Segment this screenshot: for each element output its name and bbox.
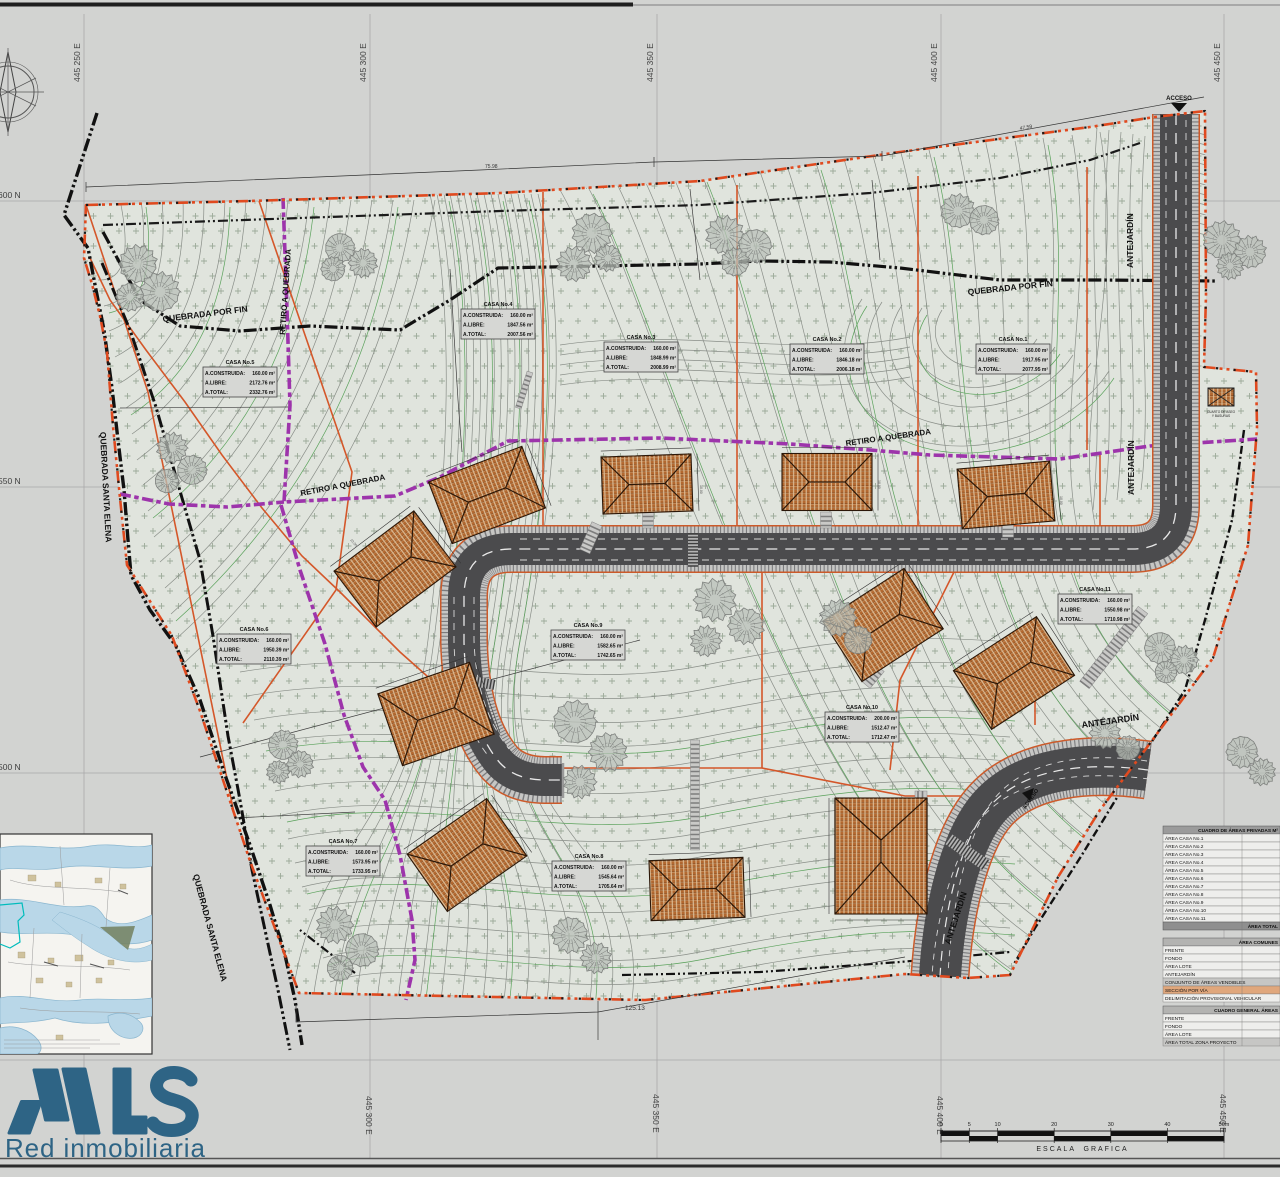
svg-text:160.00 m²: 160.00 m² bbox=[601, 865, 624, 871]
svg-text:ÁREA LOTE: ÁREA LOTE bbox=[1165, 1031, 1192, 1038]
svg-text:A.TOTAL:: A.TOTAL: bbox=[308, 869, 331, 875]
svg-text:5: 5 bbox=[968, 1122, 971, 1128]
svg-text:CASA No.7: CASA No.7 bbox=[329, 839, 358, 845]
svg-text:FONDO: FONDO bbox=[1165, 1024, 1183, 1030]
svg-text:1848.99 m²: 1848.99 m² bbox=[650, 356, 676, 362]
svg-text:1846.18 m²: 1846.18 m² bbox=[836, 358, 862, 364]
svg-text:ÁREA CASA No.3: ÁREA CASA No.3 bbox=[1165, 851, 1204, 858]
svg-text:1512.47 m²: 1512.47 m² bbox=[871, 726, 897, 732]
svg-text:A.LIBRE:: A.LIBRE: bbox=[554, 875, 576, 881]
svg-text:A.LIBRE:: A.LIBRE: bbox=[1060, 608, 1082, 614]
svg-text:ÁREA CASA No.5: ÁREA CASA No.5 bbox=[1165, 867, 1204, 874]
svg-text:A.LIBRE:: A.LIBRE: bbox=[308, 860, 330, 866]
svg-text:A.TOTAL:: A.TOTAL: bbox=[463, 332, 486, 338]
svg-text:1950.39 m²: 1950.39 m² bbox=[263, 648, 289, 654]
svg-text:160.00 m²: 160.00 m² bbox=[355, 850, 378, 856]
svg-text:CASA No.6: CASA No.6 bbox=[240, 627, 269, 633]
svg-text:A.LIBRE:: A.LIBRE: bbox=[606, 356, 628, 362]
svg-text:A.LIBRE:: A.LIBRE: bbox=[205, 381, 227, 387]
svg-text:A.LIBRE:: A.LIBRE: bbox=[978, 358, 1000, 364]
svg-text:A.TOTAL:: A.TOTAL: bbox=[205, 390, 228, 396]
svg-text:CONJUNTO DE ÁREAS VENDIBLES: CONJUNTO DE ÁREAS VENDIBLES bbox=[1165, 979, 1245, 986]
svg-text:CASA No.3: CASA No.3 bbox=[627, 335, 656, 341]
svg-text:A.CONSTRUIDA:: A.CONSTRUIDA: bbox=[827, 716, 867, 722]
svg-text:ÁREA TOTAL ZONA PROYECTO: ÁREA TOTAL ZONA PROYECTO bbox=[1165, 1039, 1237, 1046]
svg-text:1710.98 m²: 1710.98 m² bbox=[1104, 617, 1130, 623]
svg-text:160.00 m²: 160.00 m² bbox=[1025, 348, 1048, 354]
svg-text:CASA No.5: CASA No.5 bbox=[226, 360, 255, 366]
svg-text:A.CONSTRUIDA:: A.CONSTRUIDA: bbox=[219, 638, 259, 644]
svg-text:445 250 E: 445 250 E bbox=[72, 43, 82, 82]
svg-text:160.00 m²: 160.00 m² bbox=[839, 348, 862, 354]
svg-text:160.00 m²: 160.00 m² bbox=[1107, 598, 1130, 604]
svg-text:1917.95 m²: 1917.95 m² bbox=[1022, 358, 1048, 364]
svg-text:2006.18 m²: 2006.18 m² bbox=[836, 367, 862, 373]
svg-text:A.LIBRE:: A.LIBRE: bbox=[553, 644, 575, 650]
svg-text:ÁREA CASA No.4: ÁREA CASA No.4 bbox=[1165, 859, 1204, 866]
svg-text:ESCALA GRAFICA: ESCALA GRAFICA bbox=[1036, 1146, 1128, 1153]
svg-text:500 N: 500 N bbox=[0, 762, 21, 772]
svg-text:1733.95 m²: 1733.95 m² bbox=[352, 869, 378, 875]
svg-text:A.TOTAL:: A.TOTAL: bbox=[827, 735, 850, 741]
svg-text:ÁREA LOTE: ÁREA LOTE bbox=[1165, 963, 1192, 970]
svg-text:A.LIBRE:: A.LIBRE: bbox=[827, 726, 849, 732]
svg-text:A.LIBRE:: A.LIBRE: bbox=[219, 648, 241, 654]
svg-text:2008.99 m²: 2008.99 m² bbox=[650, 365, 676, 371]
svg-text:A.CONSTRUIDA:: A.CONSTRUIDA: bbox=[205, 371, 245, 377]
svg-text:445 350 E: 445 350 E bbox=[651, 1094, 661, 1133]
svg-text:2077.95 m²: 2077.95 m² bbox=[1022, 367, 1048, 373]
svg-text:A.TOTAL:: A.TOTAL: bbox=[606, 365, 629, 371]
svg-text:A.CONSTRUIDA:: A.CONSTRUIDA: bbox=[606, 346, 646, 352]
svg-text:445 300 E: 445 300 E bbox=[364, 1096, 374, 1135]
svg-text:1545.64 m²: 1545.64 m² bbox=[598, 875, 624, 881]
svg-text:ÁREA CASA No.7: ÁREA CASA No.7 bbox=[1165, 883, 1204, 890]
svg-text:A.LIBRE:: A.LIBRE: bbox=[463, 323, 485, 329]
svg-text:A.TOTAL:: A.TOTAL: bbox=[219, 657, 242, 663]
svg-text:1847.56 m²: 1847.56 m² bbox=[507, 323, 533, 329]
svg-text:10.00: 10.00 bbox=[699, 485, 703, 494]
svg-text:CASA No.2: CASA No.2 bbox=[813, 337, 842, 343]
svg-text:10.00: 10.00 bbox=[1059, 496, 1063, 505]
svg-text:CUADRO DE ÁREAS PRIVADAS M²: CUADRO DE ÁREAS PRIVADAS M² bbox=[1198, 827, 1278, 834]
svg-text:1573.95 m²: 1573.95 m² bbox=[352, 860, 378, 866]
svg-text:2007.56 m²: 2007.56 m² bbox=[507, 332, 533, 338]
svg-text:CUADRO GENERAL ÁREAS: CUADRO GENERAL ÁREAS bbox=[1214, 1007, 1279, 1014]
svg-text:ANTEJARDÍN: ANTEJARDÍN bbox=[1165, 971, 1196, 978]
svg-text:160.00 m²: 160.00 m² bbox=[510, 313, 533, 319]
svg-text:125.13: 125.13 bbox=[625, 1005, 645, 1012]
svg-text:1742.65 m²: 1742.65 m² bbox=[597, 653, 623, 659]
svg-text:1712.47 m²: 1712.47 m² bbox=[871, 735, 897, 741]
svg-text:A.TOTAL:: A.TOTAL: bbox=[978, 367, 1001, 373]
svg-text:SECCIÓN POR VÍA: SECCIÓN POR VÍA bbox=[1165, 987, 1208, 994]
svg-text:A.TOTAL:: A.TOTAL: bbox=[554, 884, 577, 890]
svg-text:CASA No.10: CASA No.10 bbox=[846, 705, 878, 711]
svg-text:A.CONSTRUIDA:: A.CONSTRUIDA: bbox=[463, 313, 503, 319]
svg-text:ÁREA CASA No.6: ÁREA CASA No.6 bbox=[1165, 875, 1204, 882]
svg-text:10.00: 10.00 bbox=[877, 480, 881, 489]
svg-text:ÁREA TOTAL: ÁREA TOTAL bbox=[1248, 923, 1278, 930]
svg-text:1582.65 m²: 1582.65 m² bbox=[597, 644, 623, 650]
svg-text:20: 20 bbox=[1051, 1122, 1057, 1128]
svg-text:ÁREA CASA No.8: ÁREA CASA No.8 bbox=[1165, 891, 1204, 898]
svg-text:445 400 E: 445 400 E bbox=[929, 43, 939, 82]
svg-text:A.CONSTRUIDA:: A.CONSTRUIDA: bbox=[554, 865, 594, 871]
svg-text:10: 10 bbox=[995, 1122, 1001, 1128]
svg-text:A.CONSTRUIDA:: A.CONSTRUIDA: bbox=[553, 634, 593, 640]
svg-text:160.00 m²: 160.00 m² bbox=[252, 371, 275, 377]
svg-text:ACCESO: ACCESO bbox=[1166, 96, 1192, 102]
svg-text:75.98: 75.98 bbox=[485, 164, 498, 170]
svg-text:ÁREA CASA No.9: ÁREA CASA No.9 bbox=[1165, 899, 1204, 906]
svg-text:CASA No.8: CASA No.8 bbox=[575, 854, 604, 860]
svg-text:CASA No.9: CASA No.9 bbox=[574, 623, 603, 629]
svg-text:ÁREA CASA No.2: ÁREA CASA No.2 bbox=[1165, 843, 1204, 850]
svg-text:A.TOTAL:: A.TOTAL: bbox=[553, 653, 576, 659]
svg-text:A.CONSTRUIDA:: A.CONSTRUIDA: bbox=[792, 348, 832, 354]
svg-text:445 350 E: 445 350 E bbox=[645, 43, 655, 82]
svg-text:445 450 E: 445 450 E bbox=[1212, 43, 1222, 82]
svg-text:A.TOTAL:: A.TOTAL: bbox=[792, 367, 815, 373]
svg-text:FRENTE: FRENTE bbox=[1165, 1016, 1184, 1022]
svg-text:A.CONSTRUIDA:: A.CONSTRUIDA: bbox=[1060, 598, 1100, 604]
svg-text:ÁREA COMUNES: ÁREA COMUNES bbox=[1239, 939, 1279, 946]
svg-text:600 N: 600 N bbox=[0, 190, 21, 200]
svg-text:DELIMITACIÓN PROVISIONAL VEHIC: DELIMITACIÓN PROVISIONAL VEHICULAR bbox=[1165, 995, 1262, 1002]
svg-text:2110.39 m²: 2110.39 m² bbox=[264, 657, 290, 663]
svg-text:CASA No.4: CASA No.4 bbox=[484, 302, 514, 308]
svg-text:CASA No.1: CASA No.1 bbox=[999, 337, 1028, 343]
svg-text:445 300 E: 445 300 E bbox=[358, 43, 368, 82]
svg-text:ÁREA CASA No.1: ÁREA CASA No.1 bbox=[1165, 835, 1204, 842]
svg-text:FONDO: FONDO bbox=[1165, 956, 1183, 962]
svg-text:200.00 m²: 200.00 m² bbox=[874, 716, 897, 722]
svg-text:ÁREA CASA No.11: ÁREA CASA No.11 bbox=[1165, 915, 1206, 922]
svg-text:Y BASURAS: Y BASURAS bbox=[1212, 414, 1230, 418]
svg-text:A.CONSTRUIDA:: A.CONSTRUIDA: bbox=[978, 348, 1018, 354]
svg-text:FRENTE: FRENTE bbox=[1165, 948, 1184, 954]
svg-text:1550.98 m²: 1550.98 m² bbox=[1104, 608, 1130, 614]
svg-text:40: 40 bbox=[1164, 1122, 1170, 1128]
svg-text:30: 30 bbox=[1108, 1122, 1114, 1128]
svg-text:A.TOTAL:: A.TOTAL: bbox=[1060, 617, 1083, 623]
svg-text:50m: 50m bbox=[1219, 1122, 1230, 1128]
svg-text:160.00 m²: 160.00 m² bbox=[653, 346, 676, 352]
svg-text:445 400 E: 445 400 E bbox=[935, 1096, 945, 1135]
svg-text:2172.76 m²: 2172.76 m² bbox=[249, 381, 275, 387]
svg-text:160.00 m²: 160.00 m² bbox=[266, 638, 289, 644]
svg-text:2332.76 m²: 2332.76 m² bbox=[249, 390, 275, 396]
svg-text:A.CONSTRUIDA:: A.CONSTRUIDA: bbox=[308, 850, 348, 856]
svg-text:ÁREA CASA No.10: ÁREA CASA No.10 bbox=[1165, 907, 1206, 914]
svg-text:ANTEJARDÍN: ANTEJARDÍN bbox=[1125, 213, 1135, 268]
svg-text:CASA No.11: CASA No.11 bbox=[1079, 587, 1111, 593]
svg-text:160.00 m²: 160.00 m² bbox=[600, 634, 623, 640]
svg-text:0: 0 bbox=[939, 1122, 942, 1128]
svg-text:A.LIBRE:: A.LIBRE: bbox=[792, 358, 814, 364]
svg-text:550 N: 550 N bbox=[0, 476, 21, 486]
svg-text:Red inmobiliaria: Red inmobiliaria bbox=[5, 1133, 206, 1163]
svg-text:ANTEJARDÍN: ANTEJARDÍN bbox=[1126, 440, 1136, 495]
svg-text:1705.64 m²: 1705.64 m² bbox=[598, 884, 624, 890]
